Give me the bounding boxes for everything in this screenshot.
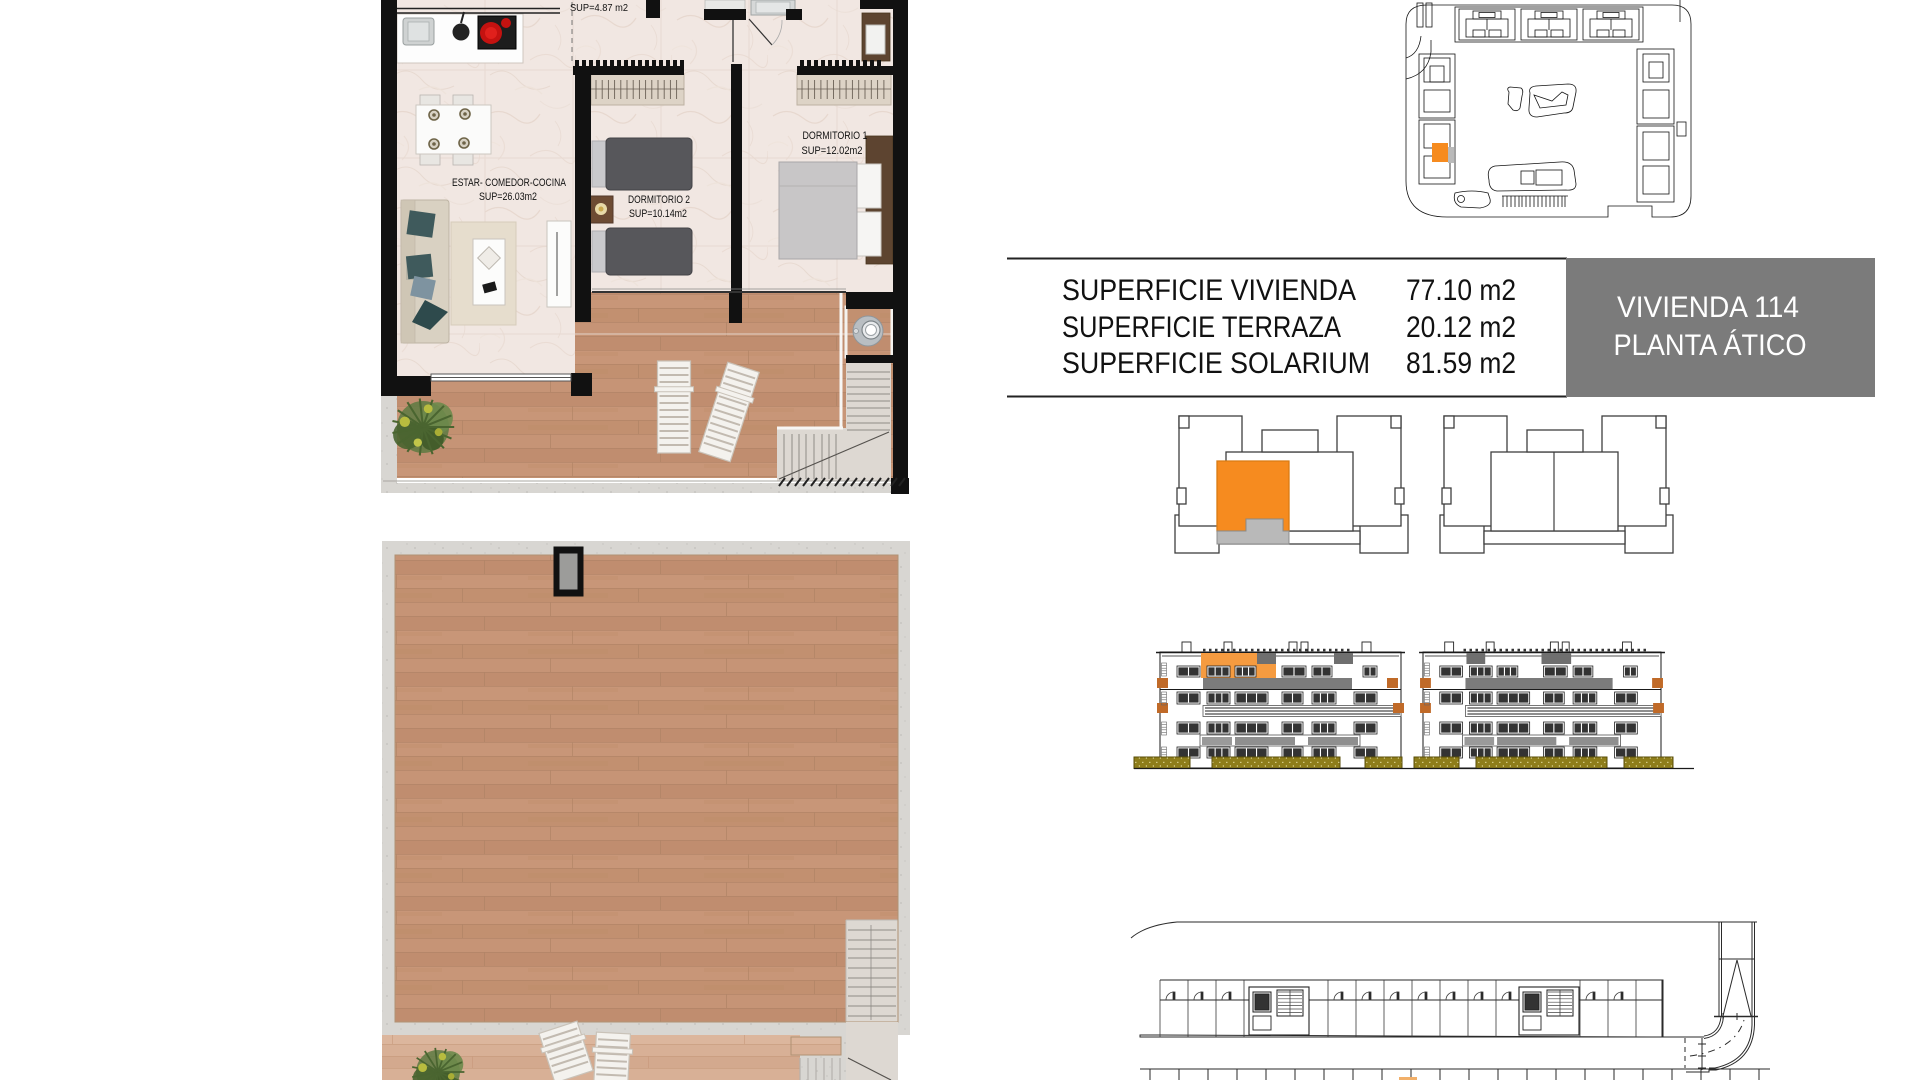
svg-text:PLANTA ÁTICO: PLANTA ÁTICO (1614, 329, 1807, 362)
svg-text:SUPERFICIE TERRAZA: SUPERFICIE TERRAZA (1062, 311, 1341, 344)
svg-text:SUPERFICIE SOLARIUM: SUPERFICIE SOLARIUM (1062, 347, 1370, 380)
svg-text:81.59 m2: 81.59 m2 (1406, 347, 1516, 380)
svg-text:DORMITORIO 1: DORMITORIO 1 (803, 130, 868, 142)
svg-text:SUPERFICIE VIVIENDA: SUPERFICIE VIVIENDA (1062, 274, 1356, 307)
svg-text:77.10 m2: 77.10 m2 (1406, 274, 1516, 307)
svg-text:SUP=4.87 m2: SUP=4.87 m2 (570, 2, 628, 14)
svg-text:DORMITORIO 2: DORMITORIO 2 (628, 194, 690, 206)
svg-text:ESTAR- COMEDOR-COCINA: ESTAR- COMEDOR-COCINA (452, 177, 567, 189)
svg-text:20.12 m2: 20.12 m2 (1406, 311, 1516, 344)
svg-text:SUP=10.14m2: SUP=10.14m2 (629, 208, 687, 220)
svg-text:SUP=26.03m2: SUP=26.03m2 (479, 191, 537, 203)
svg-text:SUP=12.02m2: SUP=12.02m2 (802, 145, 863, 157)
svg-text:VIVIENDA 114: VIVIENDA 114 (1617, 291, 1799, 324)
